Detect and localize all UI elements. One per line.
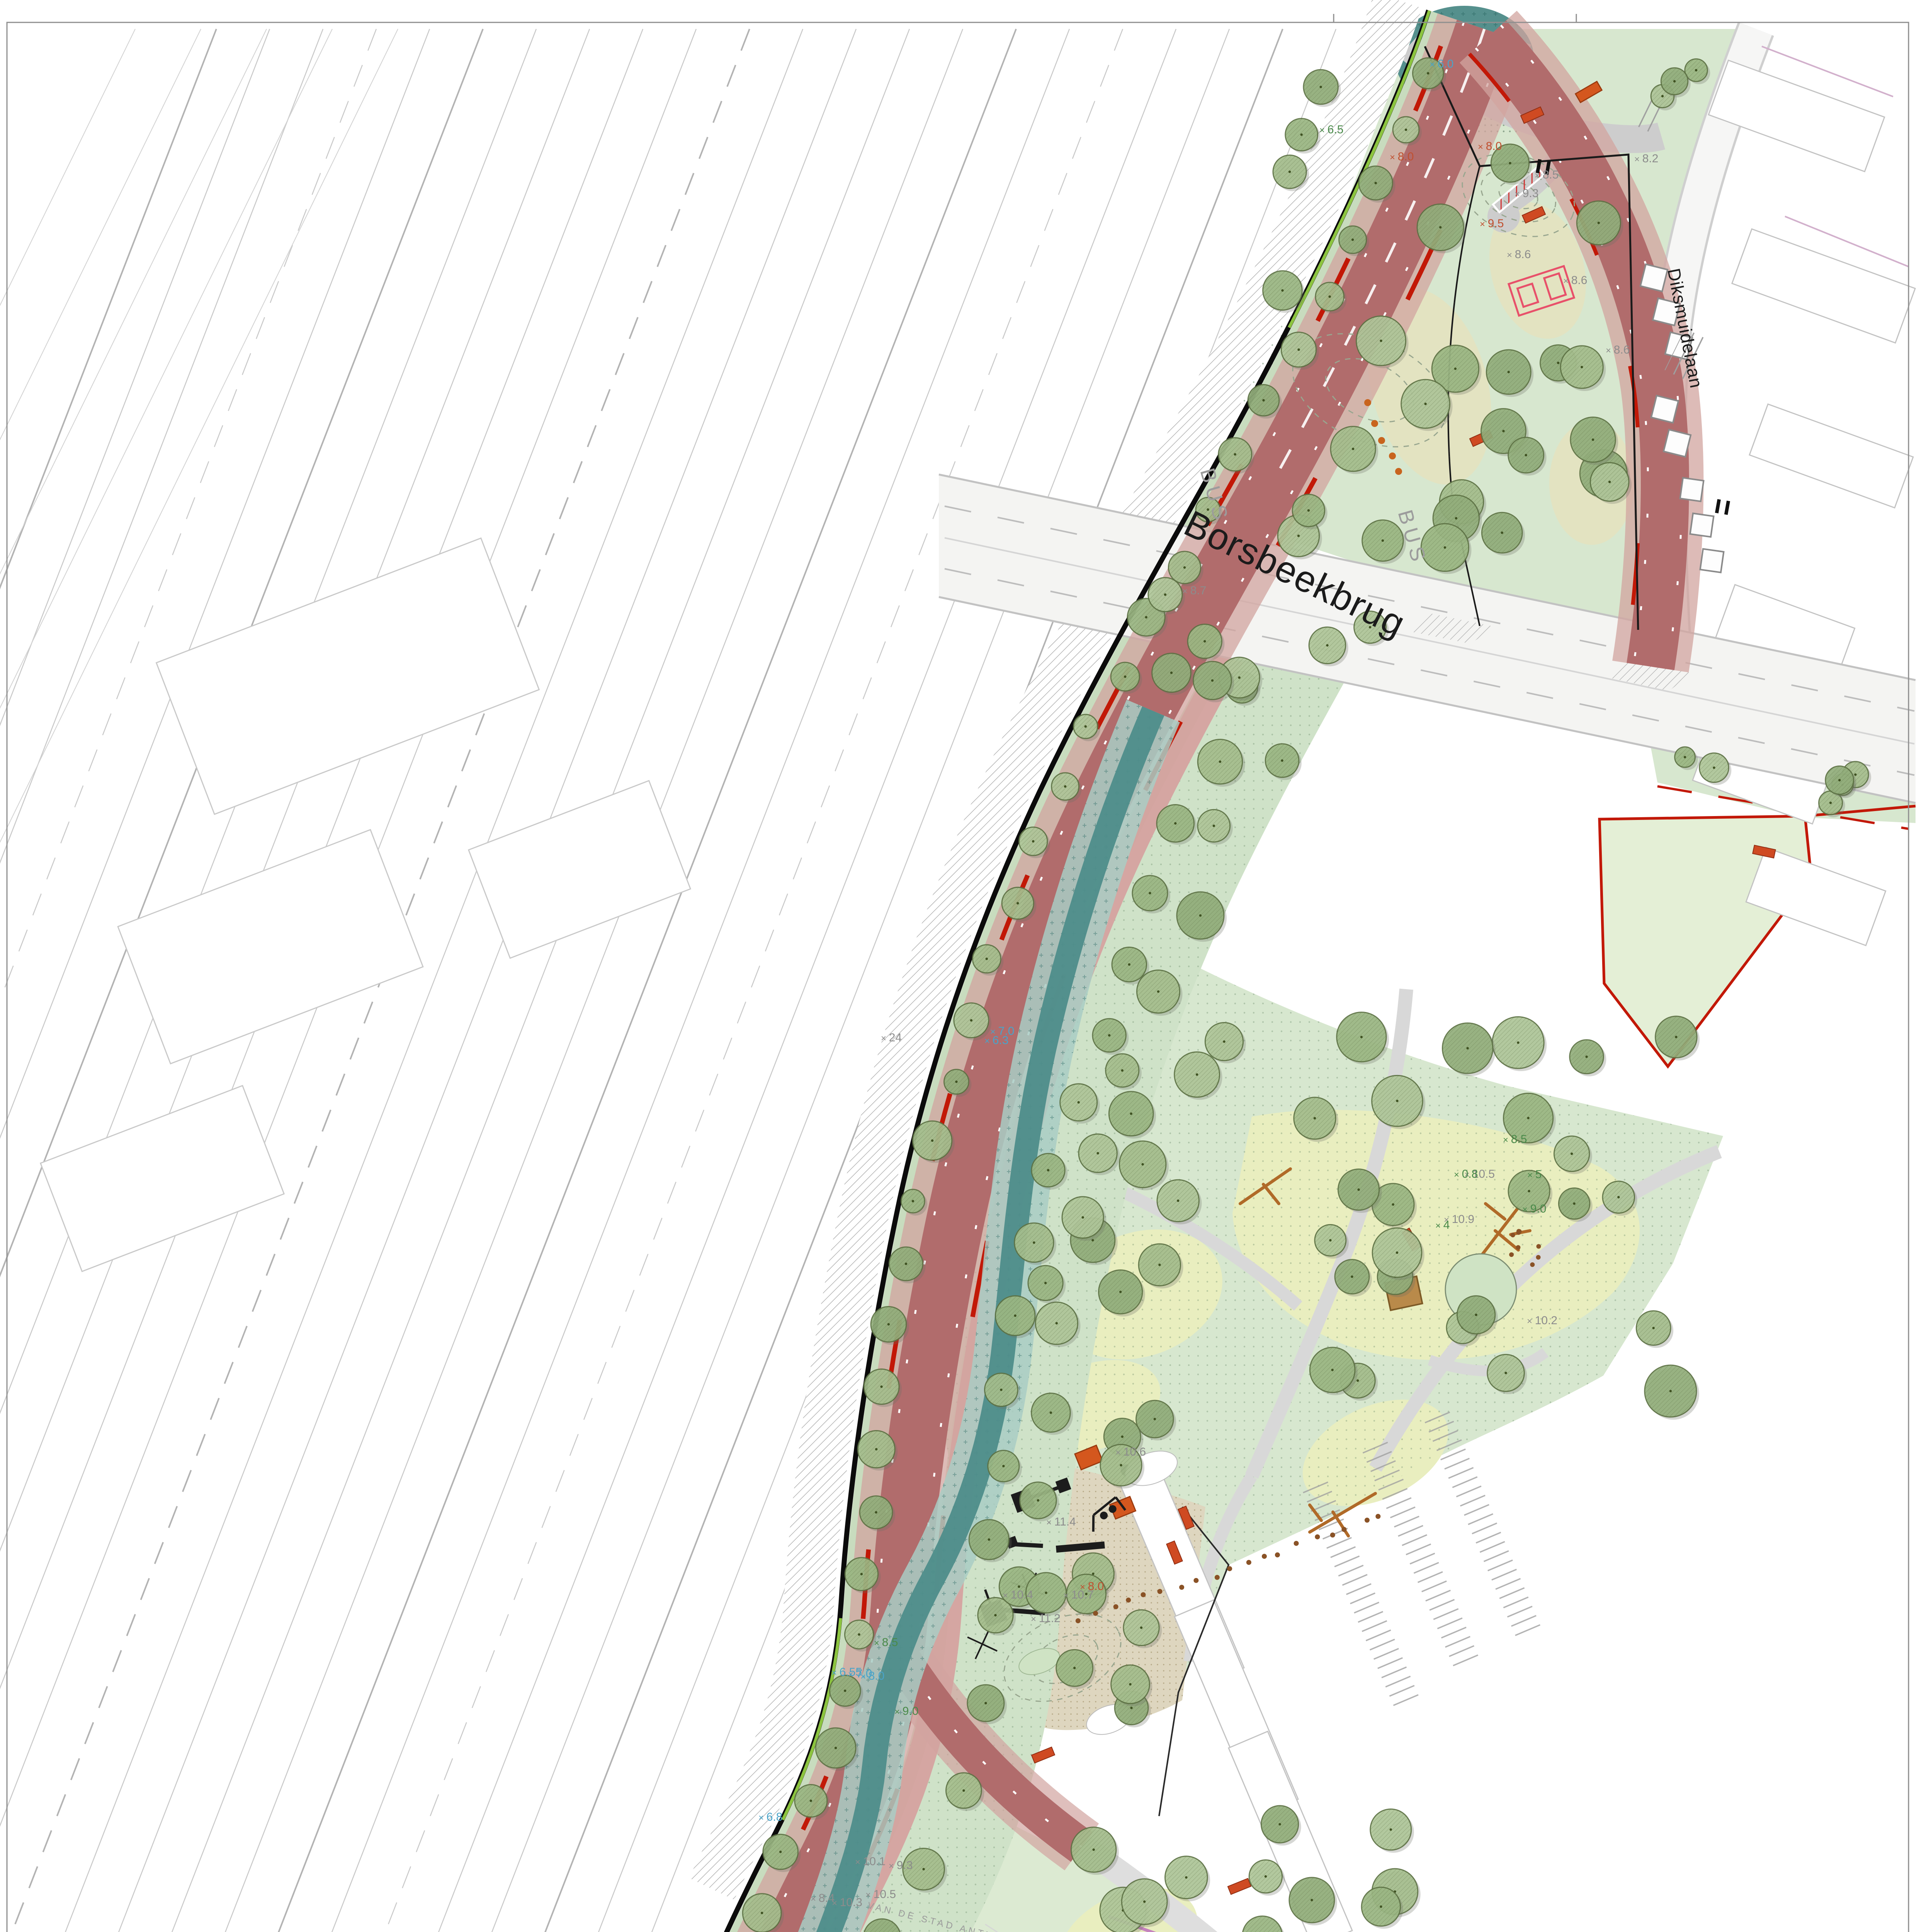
spot-height: × 10.5 bbox=[865, 1888, 896, 1901]
spot-height: × 8.4 bbox=[811, 1892, 835, 1905]
spot-height: × 8.5 bbox=[1503, 1133, 1527, 1146]
tree bbox=[1370, 1809, 1414, 1853]
spot-height: × 10.3 bbox=[832, 1896, 862, 1909]
masterplan-map: BorsbeekbrugDiksmuidelaanSpoorbrug noord… bbox=[0, 0, 1919, 1932]
tree bbox=[1442, 1023, 1495, 1076]
spot-height: × 8.5 bbox=[1535, 168, 1559, 181]
spot-height: × 6.3 bbox=[984, 1034, 1008, 1047]
spot-height: × 9.0 bbox=[1522, 1202, 1546, 1215]
building bbox=[1749, 404, 1913, 508]
spot-height: × 4 bbox=[1435, 1219, 1450, 1231]
tree bbox=[1273, 155, 1309, 191]
building bbox=[1732, 229, 1915, 343]
spot-height: × 8.0 bbox=[1390, 150, 1414, 163]
spot-height: × 8.7 bbox=[1182, 584, 1206, 597]
spot-height: × 8.0 bbox=[1478, 140, 1502, 153]
spot-height: × 10.2 bbox=[1527, 1314, 1557, 1327]
spot-height: × 11.4 bbox=[1046, 1515, 1076, 1528]
station-buildings bbox=[41, 538, 690, 1272]
spot-height: × 9.5 bbox=[1480, 217, 1504, 230]
tree bbox=[1242, 1916, 1285, 1932]
spot-height: × 8.6 bbox=[1507, 248, 1531, 261]
tree bbox=[1492, 1017, 1547, 1071]
tree bbox=[1636, 1311, 1673, 1348]
building bbox=[1708, 60, 1884, 172]
spot-height: × 6.8 bbox=[758, 1811, 782, 1823]
spot-height: × 8.0 bbox=[1080, 1580, 1104, 1593]
spot-height: × 6.0 bbox=[1429, 58, 1453, 70]
spot-height: × 0.8 bbox=[1454, 1168, 1478, 1180]
spot-height: × 10.6 bbox=[1115, 1446, 1146, 1458]
spot-height: × 6.5 bbox=[1319, 123, 1343, 136]
spot-height: × 10.4 bbox=[1003, 1588, 1033, 1601]
spot-height: × 24 bbox=[881, 1031, 902, 1044]
spot-height: × 9.0 bbox=[894, 1705, 918, 1718]
spot-height: × 11.2 bbox=[1031, 1612, 1061, 1625]
tree bbox=[1645, 1365, 1699, 1420]
tree bbox=[1285, 119, 1321, 154]
tree bbox=[1304, 70, 1341, 107]
tree bbox=[1570, 1040, 1606, 1077]
plan-sheet: BorsbeekbrugDiksmuidelaanSpoorbrug noord… bbox=[0, 0, 1919, 1932]
spot-height: × 8.2 bbox=[1634, 152, 1658, 165]
spot-height: × 8.6 bbox=[1563, 274, 1587, 287]
spot-height: × 5 bbox=[1527, 1168, 1542, 1181]
spot-height: × 9.3 bbox=[889, 1859, 913, 1872]
spot-height: × 8.0 bbox=[860, 1670, 884, 1682]
spot-height: × 8.5 bbox=[874, 1636, 898, 1649]
spot-height: × 8.6 bbox=[1606, 344, 1630, 356]
spot-height: × 9.3 bbox=[1514, 187, 1538, 200]
spot-height: × 10.1 bbox=[855, 1855, 886, 1868]
